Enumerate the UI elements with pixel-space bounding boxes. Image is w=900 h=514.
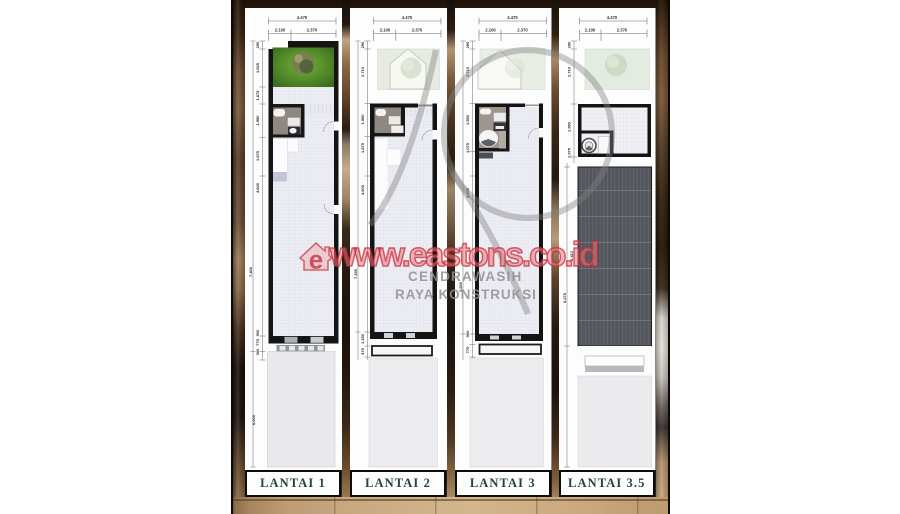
svg-text:290: 290 bbox=[255, 41, 260, 48]
svg-text:4.470: 4.470 bbox=[297, 15, 308, 20]
svg-text:775: 775 bbox=[255, 338, 260, 345]
svg-text:300: 300 bbox=[255, 348, 260, 355]
svg-text:475: 475 bbox=[360, 347, 365, 354]
svg-text:4.600: 4.600 bbox=[255, 182, 260, 193]
svg-text:6.000: 6.000 bbox=[251, 414, 256, 425]
svg-text:1.675: 1.675 bbox=[255, 90, 260, 101]
svg-text:e: e bbox=[309, 245, 323, 273]
svg-text:2.370: 2.370 bbox=[617, 27, 628, 32]
svg-text:900: 900 bbox=[465, 330, 470, 337]
svg-text:900: 900 bbox=[255, 329, 260, 336]
svg-text:4.470: 4.470 bbox=[402, 15, 413, 20]
svg-text:2.370: 2.370 bbox=[517, 27, 528, 32]
svg-text:4.470: 4.470 bbox=[507, 15, 518, 20]
svg-text:2.370: 2.370 bbox=[412, 27, 423, 32]
svg-text:1.625: 1.625 bbox=[255, 62, 260, 73]
svg-text:2.100: 2.100 bbox=[485, 27, 496, 32]
svg-text:2.100: 2.100 bbox=[275, 27, 286, 32]
svg-text:775: 775 bbox=[465, 346, 470, 353]
svg-text:2.100: 2.100 bbox=[380, 27, 391, 32]
svg-text:2.100: 2.100 bbox=[585, 27, 596, 32]
svg-text:7.400: 7.400 bbox=[248, 266, 253, 277]
svg-text:4.470: 4.470 bbox=[607, 15, 618, 20]
svg-text:1.950: 1.950 bbox=[255, 115, 260, 126]
svg-text:2.370: 2.370 bbox=[307, 27, 318, 32]
svg-text:1.675: 1.675 bbox=[255, 150, 260, 161]
svg-text:1.150: 1.150 bbox=[360, 333, 365, 344]
